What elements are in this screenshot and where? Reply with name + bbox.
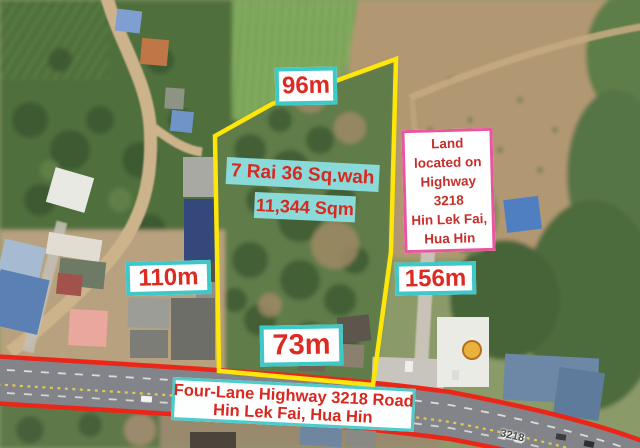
dimension-label-right: 156m — [395, 261, 477, 295]
area-label-sqm: 11,344 Sqm — [254, 192, 356, 222]
location-sign-line: located on — [414, 152, 482, 173]
location-sign-line: Land — [431, 133, 464, 153]
location-sign-line: Hin Lek Fai, — [411, 209, 487, 230]
dimension-label-bottom: 73m — [260, 324, 344, 366]
location-sign-line: Highway — [420, 171, 476, 191]
dimension-label-top: 96m — [275, 66, 338, 105]
location-sign-line: Hua Hin — [424, 228, 475, 248]
location-sign: Land located on Highway 3218 Hin Lek Fai… — [401, 128, 495, 253]
land-listing-map-image: 96m 110m 156m 73m 7 Rai 36 Sq.wah 11,344… — [0, 0, 640, 448]
location-sign-line: 3218 — [433, 190, 464, 210]
dimension-label-left: 110m — [126, 260, 212, 296]
building-logo-circle — [463, 341, 481, 359]
